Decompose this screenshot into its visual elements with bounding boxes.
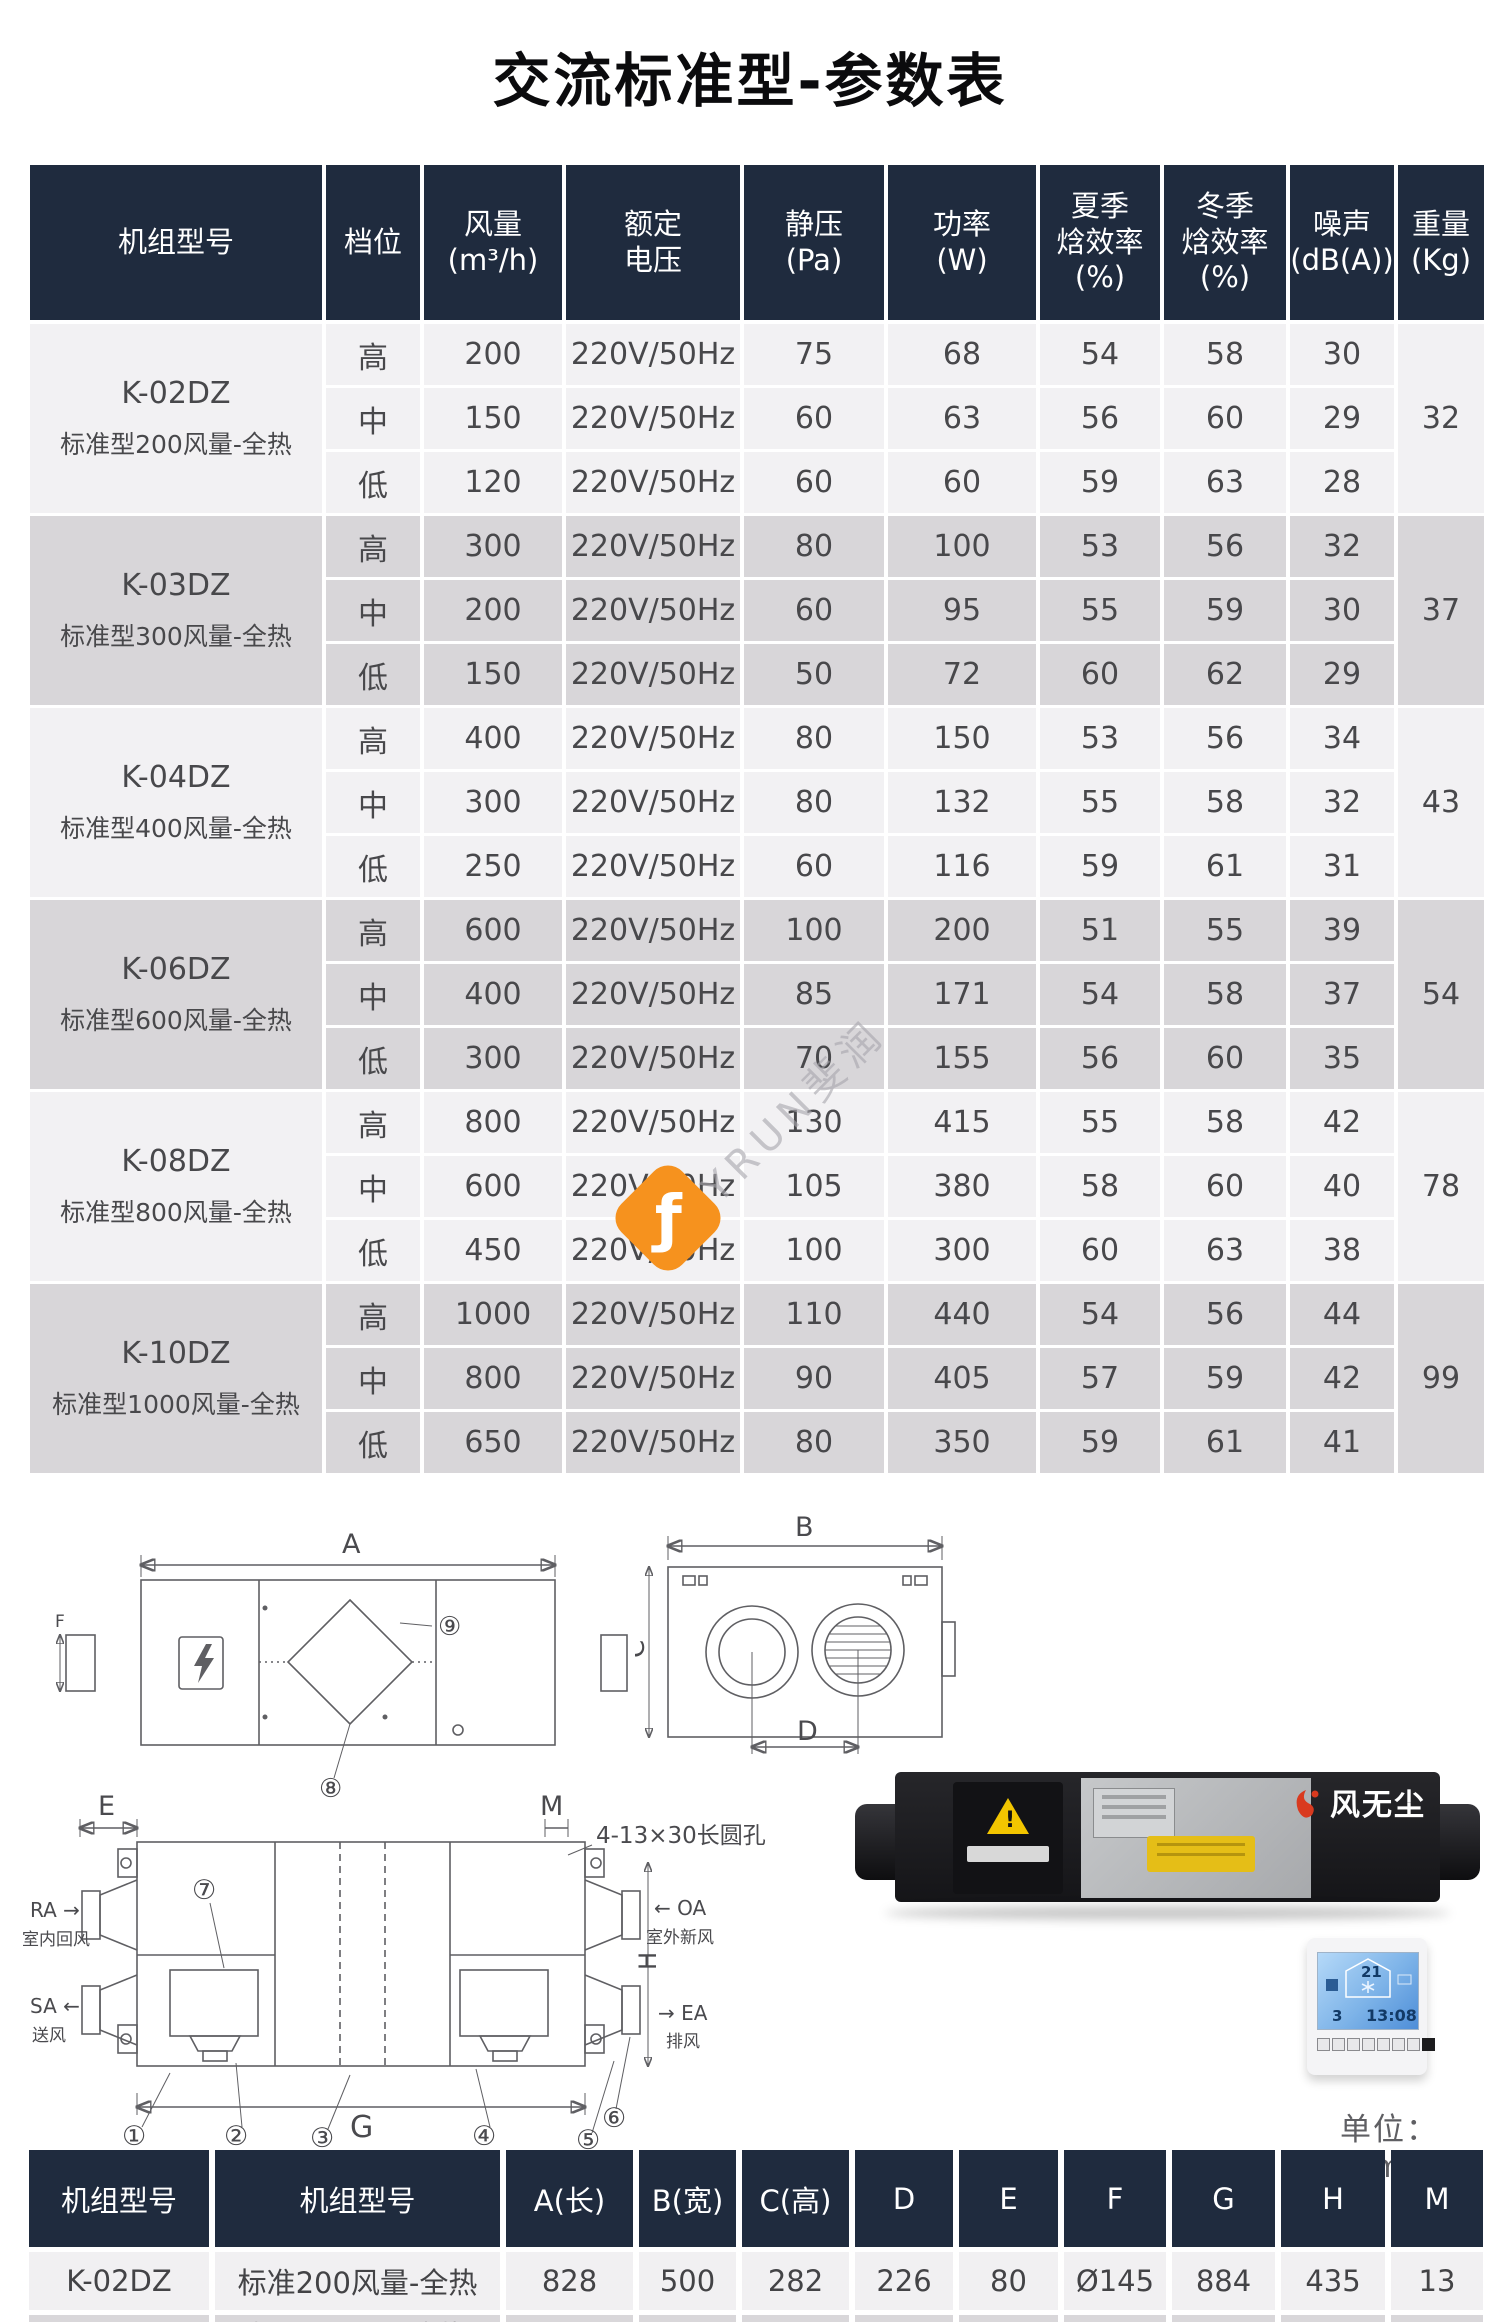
dim-partial-cell <box>1064 2315 1166 2322</box>
sa-label: SA ← <box>30 1994 80 2018</box>
mode-box <box>1398 1975 1411 1984</box>
summer-cell: 54 <box>1040 324 1160 385</box>
model-cell: K-10DZ标准型1000风量-全热 <box>30 1284 322 1473</box>
gear-cell: 中 <box>326 1348 420 1409</box>
dim-c-label: C <box>635 1640 651 1658</box>
airflow-cell: 400 <box>424 964 562 1025</box>
winter-cell: 58 <box>1164 1092 1286 1153</box>
voltage-cell: 220V/50Hz <box>566 516 740 577</box>
controller-button <box>1317 2038 1330 2051</box>
sa-desc: 送风 <box>32 2026 66 2046</box>
power-cell: 100 <box>888 516 1036 577</box>
gear-cell: 中 <box>326 964 420 1025</box>
gear-cell: 低 <box>326 836 420 897</box>
noise-cell: 29 <box>1290 388 1394 449</box>
noise-cell: 30 <box>1290 324 1394 385</box>
model-cell: K-02DZ标准型200风量-全热 <box>30 324 322 513</box>
drawing-top-view: A F ⑨ ⑧ <box>55 1495 655 1800</box>
summer-cell: 51 <box>1040 900 1160 961</box>
airflow-cell: 200 <box>424 324 562 385</box>
spec-sheet-page: 交流标准型-参数表 机组型号档位风量 (m³/h)额定 电压静压 (Pa)功率 … <box>0 0 1500 2322</box>
airflow-cell: 400 <box>424 708 562 769</box>
airflow-cell: 300 <box>424 1028 562 1089</box>
model-block: K-06DZ标准型600风量-全热高600220V/50Hz1002005155… <box>30 900 1484 1089</box>
dim-header-cell: H <box>1281 2150 1385 2247</box>
controller-button <box>1347 2038 1360 2051</box>
voltage-cell: 220V/50Hz <box>566 1348 740 1409</box>
ra-label: RA → <box>30 1898 80 1922</box>
weight-cell: 32 <box>1398 324 1484 513</box>
winter-cell: 60 <box>1164 388 1286 449</box>
dim-f-label: F <box>55 1612 65 1632</box>
noise-cell: 38 <box>1290 1220 1394 1281</box>
airflow-cell: 120 <box>424 452 562 513</box>
noise-cell: 28 <box>1290 452 1394 513</box>
voltage-cell: 220V/50Hz <box>566 1412 740 1473</box>
model-desc: 标准型800风量-全热 <box>60 1193 292 1229</box>
dim-partial-cell <box>506 2315 633 2322</box>
dim-partial-cell <box>742 2315 849 2322</box>
airflow-cell: 450 <box>424 1220 562 1281</box>
main-header-cell: 功率 (W) <box>888 165 1036 320</box>
noise-cell: 32 <box>1290 516 1394 577</box>
power-cell: 72 <box>888 644 1036 705</box>
dim-row-cell: K-02DZ <box>29 2252 209 2310</box>
airflow-cell: 250 <box>424 836 562 897</box>
rating-label <box>967 1846 1049 1862</box>
gear-cell: 高 <box>326 516 420 577</box>
main-header-cell: 夏季 焓效率 (%) <box>1040 165 1160 320</box>
winter-cell: 59 <box>1164 580 1286 641</box>
voltage-cell: 220V/50Hz <box>566 1284 740 1345</box>
pressure-cell: 80 <box>744 1412 884 1473</box>
noise-cell: 34 <box>1290 708 1394 769</box>
power-cell: 300 <box>888 1220 1036 1281</box>
gear-cell: 低 <box>326 644 420 705</box>
callout-3: ③ <box>310 2123 334 2150</box>
airflow-cell: 300 <box>424 516 562 577</box>
summer-cell: 60 <box>1040 644 1160 705</box>
power-cell: 150 <box>888 708 1036 769</box>
airflow-cell: 600 <box>424 1156 562 1217</box>
dim-header-cell: 机组型号 <box>215 2150 500 2247</box>
pressure-cell: 60 <box>744 388 884 449</box>
model-cell: K-06DZ标准型600风量-全热 <box>30 900 322 1089</box>
screen-graphics: 21 3 13:08 <box>1318 1953 1418 2029</box>
airflow-cell: 600 <box>424 900 562 961</box>
gear-cell: 高 <box>326 1284 420 1345</box>
pressure-cell: 100 <box>744 1220 884 1281</box>
spec-label <box>1093 1788 1175 1838</box>
main-table-body: K-02DZ标准型200风量-全热高200220V/50Hz7568545830… <box>30 324 1484 1473</box>
winter-cell: 61 <box>1164 836 1286 897</box>
pressure-cell: 90 <box>744 1348 884 1409</box>
dim-m-label: M <box>540 1791 563 1822</box>
summer-cell: 55 <box>1040 1092 1160 1153</box>
temp-readout: 21 <box>1361 1963 1382 1981</box>
dim-partial-cell: 标准300风量-全热 <box>215 2315 500 2322</box>
winter-cell: 60 <box>1164 1156 1286 1217</box>
fan-icon <box>1326 1979 1338 1991</box>
access-panel <box>1081 1778 1311 1898</box>
dim-row-cell: 13 <box>1391 2252 1483 2310</box>
weight-cell: 78 <box>1398 1092 1484 1281</box>
pressure-cell: 60 <box>744 580 884 641</box>
power-cell: 415 <box>888 1092 1036 1153</box>
dim-header-cell: G <box>1172 2150 1275 2247</box>
controller-button <box>1377 2038 1390 2051</box>
callout-2: ② <box>224 2121 248 2150</box>
dim-row-cell: 282 <box>742 2252 849 2310</box>
model-desc: 标准型600风量-全热 <box>60 1001 292 1037</box>
noise-cell: 35 <box>1290 1028 1394 1089</box>
time-readout: 13:08 <box>1366 2006 1417 2025</box>
winter-cell: 61 <box>1164 1412 1286 1473</box>
dim-e-label: E <box>98 1791 115 1822</box>
winter-cell: 58 <box>1164 324 1286 385</box>
hole-note: 4-13×30长圆孔 <box>596 1823 766 1849</box>
power-cell: 405 <box>888 1348 1036 1409</box>
pressure-cell: 80 <box>744 772 884 833</box>
main-header-cell: 风量 (m³/h) <box>424 165 562 320</box>
main-header-cell: 额定 电压 <box>566 165 740 320</box>
dim-partial-cell <box>29 2315 209 2322</box>
callout-9: ⑨ <box>438 1612 461 1642</box>
noise-cell: 37 <box>1290 964 1394 1025</box>
model-desc: 标准型400风量-全热 <box>60 809 292 845</box>
voltage-cell: 220V/50Hz <box>566 900 740 961</box>
weight-cell: 37 <box>1398 516 1484 705</box>
callout-1: ① <box>122 2121 146 2150</box>
pressure-cell: 75 <box>744 324 884 385</box>
voltage-cell: 220V/50Hz <box>566 388 740 449</box>
dim-g-label: G <box>350 2110 373 2145</box>
dim-row-cell: 80 <box>959 2252 1058 2310</box>
winter-cell: 59 <box>1164 1348 1286 1409</box>
main-header-cell: 重量 (Kg) <box>1398 165 1484 320</box>
warning-mark: ! <box>1005 1808 1015 1833</box>
dim-header-cell: B(宽) <box>639 2150 736 2247</box>
noise-cell: 29 <box>1290 644 1394 705</box>
airflow-cell: 150 <box>424 644 562 705</box>
gear-cell: 高 <box>326 1092 420 1153</box>
gear-cell: 高 <box>326 900 420 961</box>
dim-partial-cell <box>639 2315 736 2322</box>
dim-header-cell: D <box>855 2150 953 2247</box>
voltage-cell: 220V/50Hz <box>566 452 740 513</box>
brand-area: 风无尘 <box>1290 1780 1426 1824</box>
dim-partial-cell <box>1172 2315 1275 2322</box>
winter-cell: 60 <box>1164 1028 1286 1089</box>
model-block: K-03DZ标准型300风量-全热高300220V/50Hz8010053563… <box>30 516 1484 705</box>
power-cell: 380 <box>888 1156 1036 1217</box>
airflow-cell: 1000 <box>424 1284 562 1345</box>
callout-7: ⑦ <box>192 1875 216 1906</box>
oa-label: ← OA <box>654 1896 707 1920</box>
dim-row-cell: 435 <box>1281 2252 1385 2310</box>
ra-desc: 室内回风 <box>22 1930 90 1950</box>
main-header-cell: 机组型号 <box>30 165 322 320</box>
summer-cell: 53 <box>1040 516 1160 577</box>
product-photo: ! 风无尘 <box>855 1772 1480 1912</box>
model-code: K-08DZ <box>121 1144 230 1179</box>
voltage-cell: 220V/50Hz <box>566 644 740 705</box>
noise-cell: 41 <box>1290 1412 1394 1473</box>
gear-cell: 低 <box>326 1412 420 1473</box>
gear-cell: 中 <box>326 388 420 449</box>
summer-cell: 54 <box>1040 964 1160 1025</box>
dim-header-cell: A(长) <box>506 2150 633 2247</box>
voltage-cell: 220V/50Hz <box>566 324 740 385</box>
voltage-cell: 220V/50Hz <box>566 1028 740 1089</box>
pressure-cell: 80 <box>744 516 884 577</box>
main-parameter-table: 机组型号档位风量 (m³/h)额定 电压静压 (Pa)功率 (W)夏季 焓效率 … <box>30 165 1484 1476</box>
gear-cell: 中 <box>326 580 420 641</box>
dim-header-cell: E <box>959 2150 1058 2247</box>
dim-header-cell: 机组型号 <box>29 2150 209 2247</box>
voltage-cell: 220V/50Hz <box>566 964 740 1025</box>
main-header-cell: 冬季 焓效率 (%) <box>1164 165 1286 320</box>
summer-cell: 56 <box>1040 1028 1160 1089</box>
noise-cell: 39 <box>1290 900 1394 961</box>
model-cell: K-08DZ标准型800风量-全热 <box>30 1092 322 1281</box>
voltage-cell: 220V/50Hz <box>566 580 740 641</box>
dim-row-cell: 884 <box>1172 2252 1275 2310</box>
airflow-cell: 800 <box>424 1092 562 1153</box>
winter-cell: 56 <box>1164 708 1286 769</box>
dim-partial-cell <box>855 2315 953 2322</box>
dim-row-cell: 828 <box>506 2252 633 2310</box>
controller-button <box>1407 2038 1420 2051</box>
brand-swoosh-icon <box>1290 1786 1324 1818</box>
summer-cell: 59 <box>1040 836 1160 897</box>
noise-cell: 30 <box>1290 580 1394 641</box>
winter-cell: 63 <box>1164 1220 1286 1281</box>
pressure-cell: 80 <box>744 708 884 769</box>
main-header-cell: 静压 (Pa) <box>744 165 884 320</box>
power-cell: 155 <box>888 1028 1036 1089</box>
brand-name: 风无尘 <box>1330 1780 1426 1824</box>
model-desc: 标准型300风量-全热 <box>60 617 292 653</box>
gear-cell: 高 <box>326 708 420 769</box>
power-cell: 60 <box>888 452 1036 513</box>
controller-button <box>1422 2038 1435 2051</box>
winter-cell: 56 <box>1164 516 1286 577</box>
model-cell: K-03DZ标准型300风量-全热 <box>30 516 322 705</box>
summer-cell: 60 <box>1040 1220 1160 1281</box>
airflow-cell: 800 <box>424 1348 562 1409</box>
dim-a-label: A <box>342 1529 361 1560</box>
model-desc: 标准型1000风量-全热 <box>52 1385 300 1421</box>
noise-cell: 32 <box>1290 772 1394 833</box>
dim-d-label: D <box>797 1716 818 1747</box>
ea-label: → EA <box>658 2001 708 2025</box>
gear-cell: 低 <box>326 1028 420 1089</box>
pressure-cell: 50 <box>744 644 884 705</box>
pressure-cell: 110 <box>744 1284 884 1345</box>
partial-row-grid: 标准300风量-全热 <box>29 2315 1483 2322</box>
photo-shadow <box>885 1906 1450 1920</box>
winter-cell: 56 <box>1164 1284 1286 1345</box>
winter-cell: 55 <box>1164 900 1286 961</box>
power-cell: 68 <box>888 324 1036 385</box>
dim-b-label: B <box>795 1512 814 1543</box>
controller-screen: 21 3 13:08 <box>1317 1952 1419 2030</box>
noise-cell: 31 <box>1290 836 1394 897</box>
controller-button <box>1392 2038 1405 2051</box>
summer-cell: 59 <box>1040 452 1160 513</box>
winter-cell: 63 <box>1164 452 1286 513</box>
summer-cell: 57 <box>1040 1348 1160 1409</box>
power-cell: 171 <box>888 964 1036 1025</box>
airflow-cell: 200 <box>424 580 562 641</box>
winter-cell: 58 <box>1164 964 1286 1025</box>
power-cell: 116 <box>888 836 1036 897</box>
airflow-cell: 650 <box>424 1412 562 1473</box>
power-cell: 63 <box>888 388 1036 449</box>
dim-header-cell: M <box>1391 2150 1483 2247</box>
summer-cell: 53 <box>1040 708 1160 769</box>
wall-controller: 21 3 13:08 <box>1307 1938 1427 2075</box>
dim-header-cell: C(高) <box>742 2150 849 2247</box>
winter-cell: 58 <box>1164 772 1286 833</box>
gear-cell: 中 <box>326 772 420 833</box>
dimension-table-row: K-02DZ标准200风量-全热82850028222680Ø145884435… <box>29 2252 1483 2310</box>
model-desc: 标准型200风量-全热 <box>60 425 292 461</box>
noise-cell: 42 <box>1290 1348 1394 1409</box>
controller-buttons <box>1317 2038 1435 2051</box>
unit-body: ! 风无尘 <box>895 1772 1440 1902</box>
controller-button <box>1362 2038 1375 2051</box>
weight-cell: 99 <box>1398 1284 1484 1473</box>
airflow-cell: 150 <box>424 388 562 449</box>
main-table-header: 机组型号档位风量 (m³/h)额定 电压静压 (Pa)功率 (W)夏季 焓效率 … <box>30 165 1484 320</box>
callout-5: ⑤ <box>576 2125 600 2150</box>
model-code: K-02DZ <box>121 376 230 411</box>
power-cell: 95 <box>888 580 1036 641</box>
ea-desc: 排风 <box>666 2032 700 2052</box>
noise-cell: 42 <box>1290 1092 1394 1153</box>
gear-cell: 中 <box>326 1156 420 1217</box>
model-code: K-10DZ <box>121 1336 230 1371</box>
power-cell: 350 <box>888 1412 1036 1473</box>
dim-row-cell: 标准200风量-全热 <box>215 2252 500 2310</box>
model-cell: K-04DZ标准型400风量-全热 <box>30 708 322 897</box>
summer-cell: 58 <box>1040 1156 1160 1217</box>
model-block: K-10DZ标准型1000风量-全热高1000220V/50Hz11044054… <box>30 1284 1484 1473</box>
main-header-cell: 噪声 (dB(A)) <box>1290 165 1394 320</box>
model-code: K-03DZ <box>121 568 230 603</box>
model-code: K-04DZ <box>121 760 230 795</box>
gear-cell: 低 <box>326 1220 420 1281</box>
dim-partial-cell <box>1281 2315 1385 2322</box>
gear-cell: 低 <box>326 452 420 513</box>
winter-cell: 62 <box>1164 644 1286 705</box>
weight-cell: 43 <box>1398 708 1484 897</box>
electrical-box: ! <box>953 1782 1063 1894</box>
dim-partial-cell <box>959 2315 1058 2322</box>
snowflake-icon <box>1362 1981 1374 1993</box>
power-cell: 440 <box>888 1284 1036 1345</box>
voltage-cell: 220V/50Hz <box>566 772 740 833</box>
dim-h-label: H <box>634 1952 662 1970</box>
oa-desc: 室外新风 <box>646 1928 714 1948</box>
page-title: 交流标准型-参数表 <box>0 34 1500 118</box>
pressure-cell: 60 <box>744 836 884 897</box>
summer-cell: 54 <box>1040 1284 1160 1345</box>
summer-cell: 55 <box>1040 580 1160 641</box>
controller-button <box>1332 2038 1345 2051</box>
voltage-cell: 220V/50Hz <box>566 708 740 769</box>
main-header-cell: 档位 <box>326 165 420 320</box>
power-cell: 200 <box>888 900 1036 961</box>
summer-cell: 56 <box>1040 388 1160 449</box>
summer-cell: 59 <box>1040 1412 1160 1473</box>
dimension-table: 机组型号机组型号A(长)B(宽)C(高)DEFGHM K-02DZ标准200风量… <box>29 2150 1483 2322</box>
model-code: K-06DZ <box>121 952 230 987</box>
model-block: K-02DZ标准型200风量-全热高200220V/50Hz7568545830… <box>30 324 1484 513</box>
dim-header-cell: F <box>1064 2150 1166 2247</box>
day-readout: 3 <box>1332 2007 1342 2025</box>
pressure-cell: 60 <box>744 452 884 513</box>
dim-row-cell: Ø145 <box>1064 2252 1166 2310</box>
pressure-cell: 100 <box>744 900 884 961</box>
voltage-cell: 220V/50Hz <box>566 836 740 897</box>
power-cell: 132 <box>888 772 1036 833</box>
gear-cell: 高 <box>326 324 420 385</box>
dim-partial-cell <box>1391 2315 1483 2322</box>
airflow-cell: 300 <box>424 772 562 833</box>
model-block: K-04DZ标准型400风量-全热高400220V/50Hz8015053563… <box>30 708 1484 897</box>
dim-row-cell: 500 <box>639 2252 736 2310</box>
weight-cell: 54 <box>1398 900 1484 1089</box>
noise-cell: 44 <box>1290 1284 1394 1345</box>
dim-row-cell: 226 <box>855 2252 953 2310</box>
watermark-glyph: ƒ <box>655 1187 682 1249</box>
summer-cell: 55 <box>1040 772 1160 833</box>
lightning-icon <box>194 1644 214 1683</box>
yellow-sticker <box>1147 1836 1255 1872</box>
drawing-internal-view: E M 4-13×30长圆孔 RA → 室内回风 SA ← 送风 ← OA 室外… <box>20 1785 800 2150</box>
drawing-end-view: B C D <box>635 1500 1015 1770</box>
dimension-table-partial-row: 标准300风量-全热 <box>29 2315 1483 2322</box>
dimension-table-header: 机组型号机组型号A(长)B(宽)C(高)DEFGHM <box>29 2150 1483 2247</box>
callout-6: ⑥ <box>602 2103 626 2134</box>
callout-4: ④ <box>472 2121 496 2150</box>
noise-cell: 40 <box>1290 1156 1394 1217</box>
